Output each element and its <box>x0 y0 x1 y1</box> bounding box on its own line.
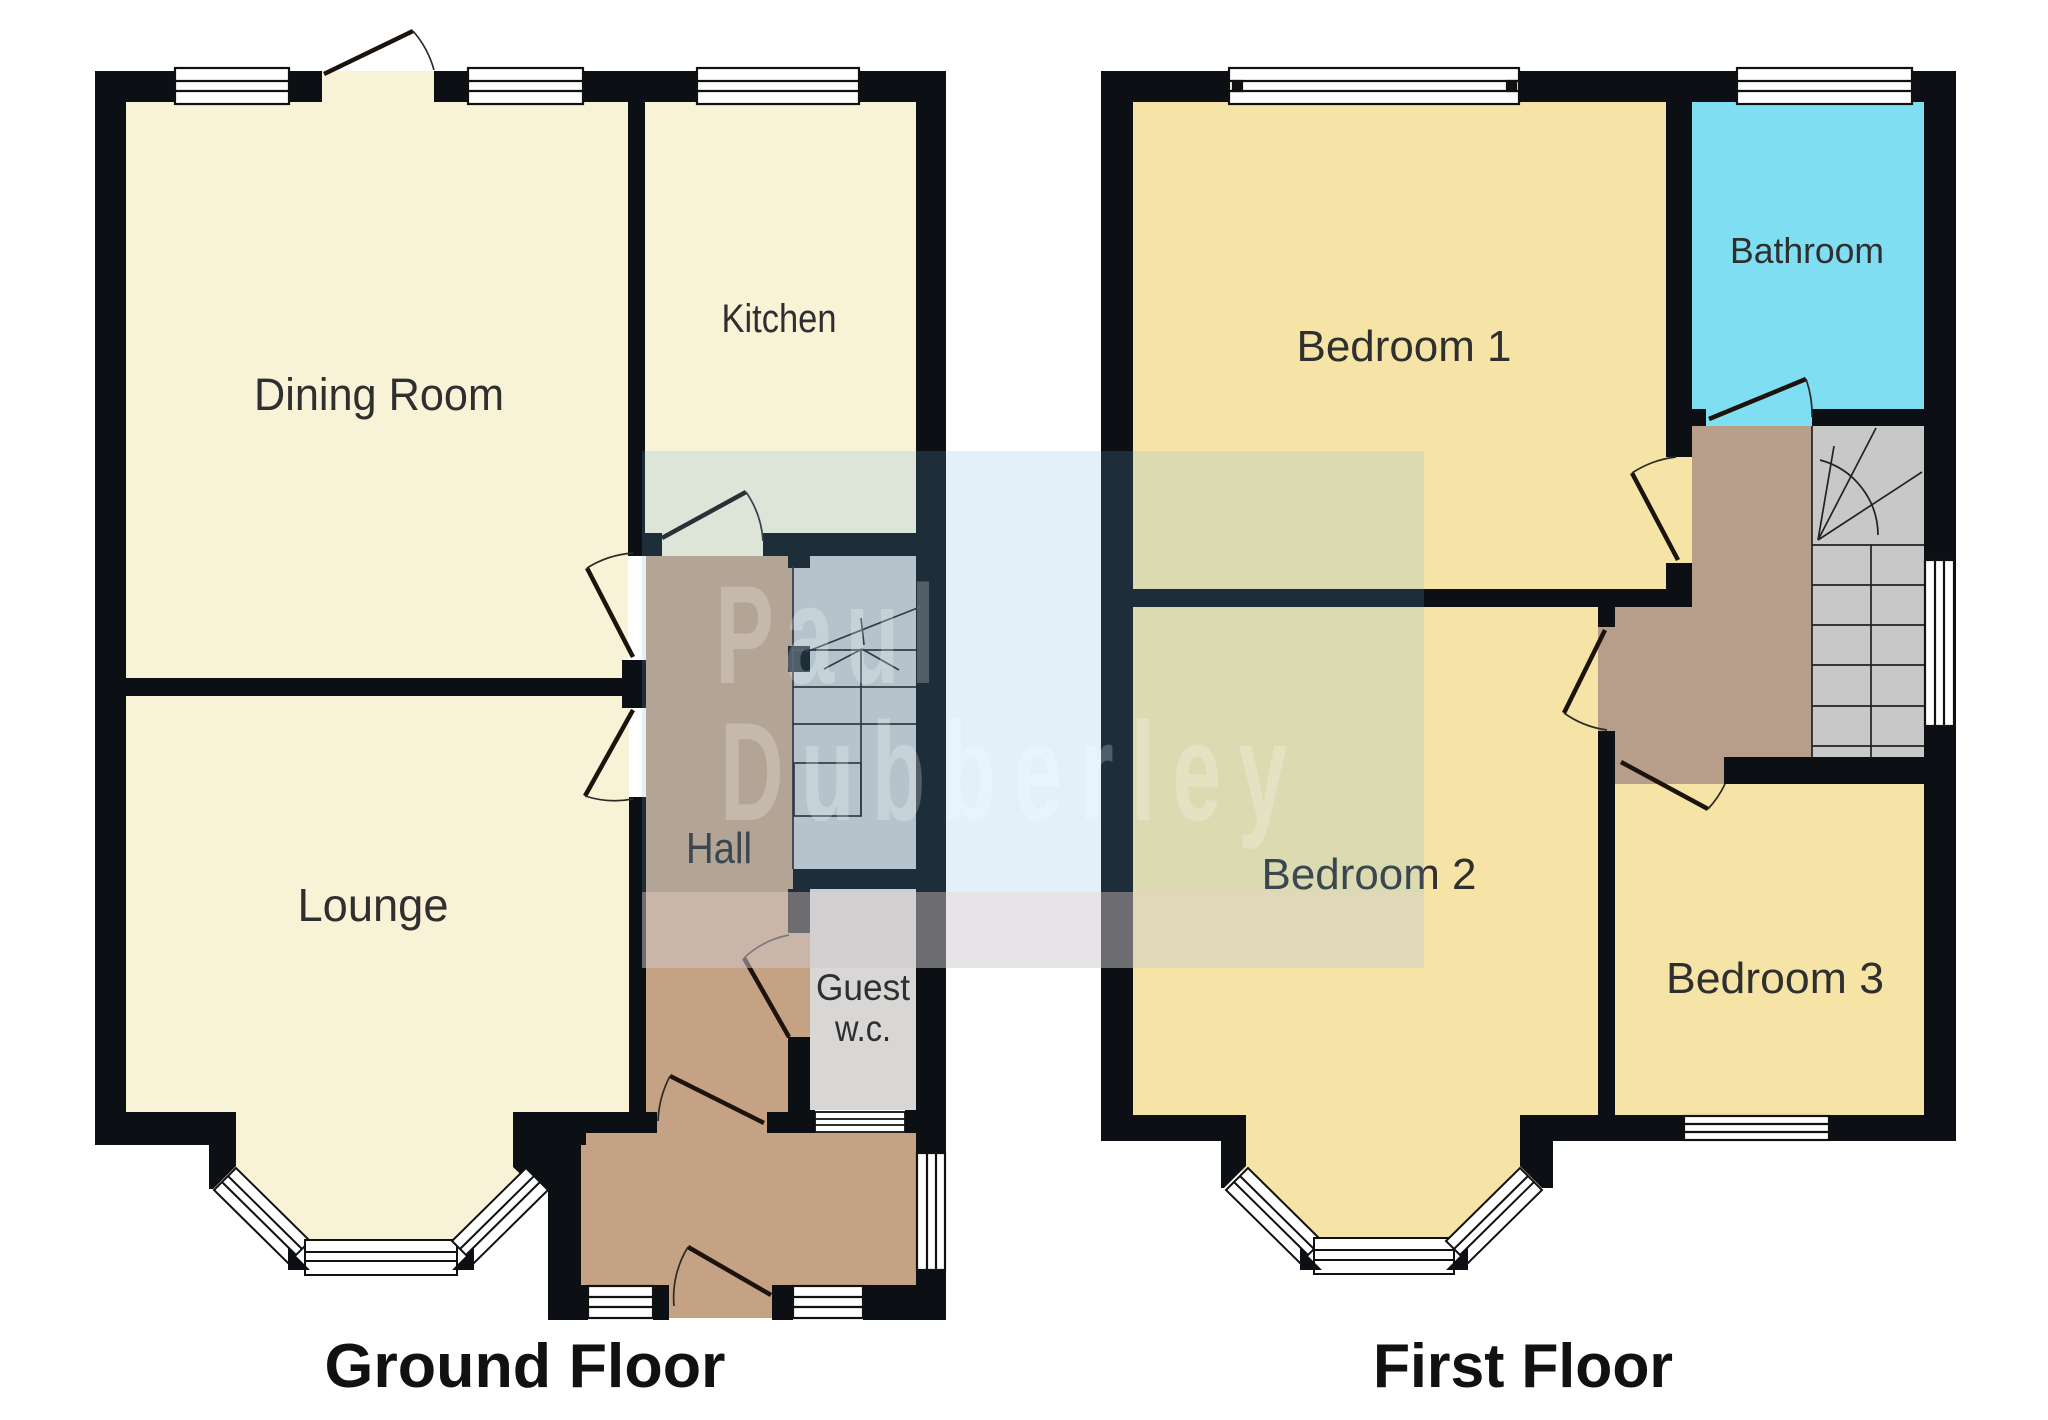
svg-text:Ground Floor: Ground Floor <box>325 1332 726 1401</box>
svg-text:w.c.: w.c. <box>834 1008 891 1049</box>
svg-text:Guest: Guest <box>816 967 911 1008</box>
svg-text:Dubberley: Dubberley <box>720 693 1304 850</box>
svg-text:Bedroom 3: Bedroom 3 <box>1666 954 1884 1003</box>
svg-text:Paul: Paul <box>715 556 947 713</box>
svg-text:Kitchen: Kitchen <box>722 297 837 341</box>
svg-text:Bathroom: Bathroom <box>1730 230 1884 271</box>
svg-text:First Floor: First Floor <box>1373 1332 1673 1401</box>
svg-text:Dining Room: Dining Room <box>254 369 504 420</box>
svg-text:Bedroom 1: Bedroom 1 <box>1297 322 1512 371</box>
svg-text:Lounge: Lounge <box>298 879 449 931</box>
